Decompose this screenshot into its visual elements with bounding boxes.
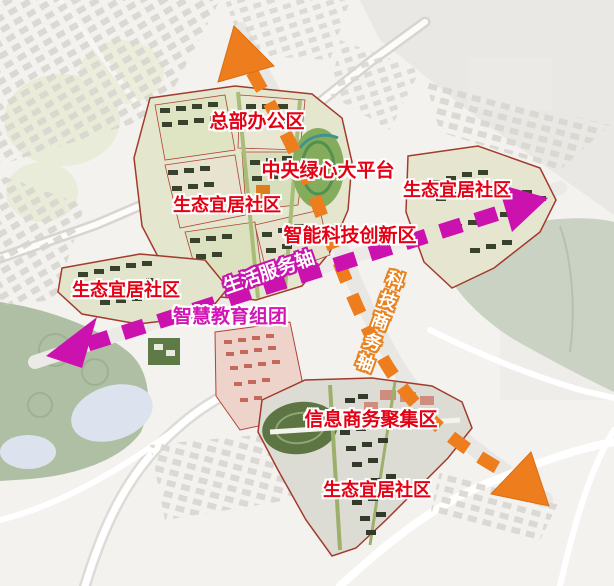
label-hq-office: 总部办公区 (209, 113, 304, 132)
label-smart-tech-innovation: 智能科技创新区 (283, 227, 416, 246)
label-eco-community-mid-left: 生态宜居社区 (72, 282, 180, 300)
label-eco-community-bottom: 生态宜居社区 (323, 482, 431, 500)
label-info-business-district: 信息商务聚集区 (304, 411, 437, 430)
label-central-green-platform: 中央绿心大平台 (261, 162, 394, 181)
label-eco-community-right: 生态宜居社区 (403, 182, 511, 200)
label-smart-education-cluster: 智慧教育组团 (173, 308, 287, 327)
urban-planning-map: 总部办公区 中央绿心大平台 生态宜居社区 生态宜居社区 智能科技创新区 生活服务… (0, 0, 614, 586)
label-eco-community-upper-left: 生态宜居社区 (173, 197, 281, 215)
